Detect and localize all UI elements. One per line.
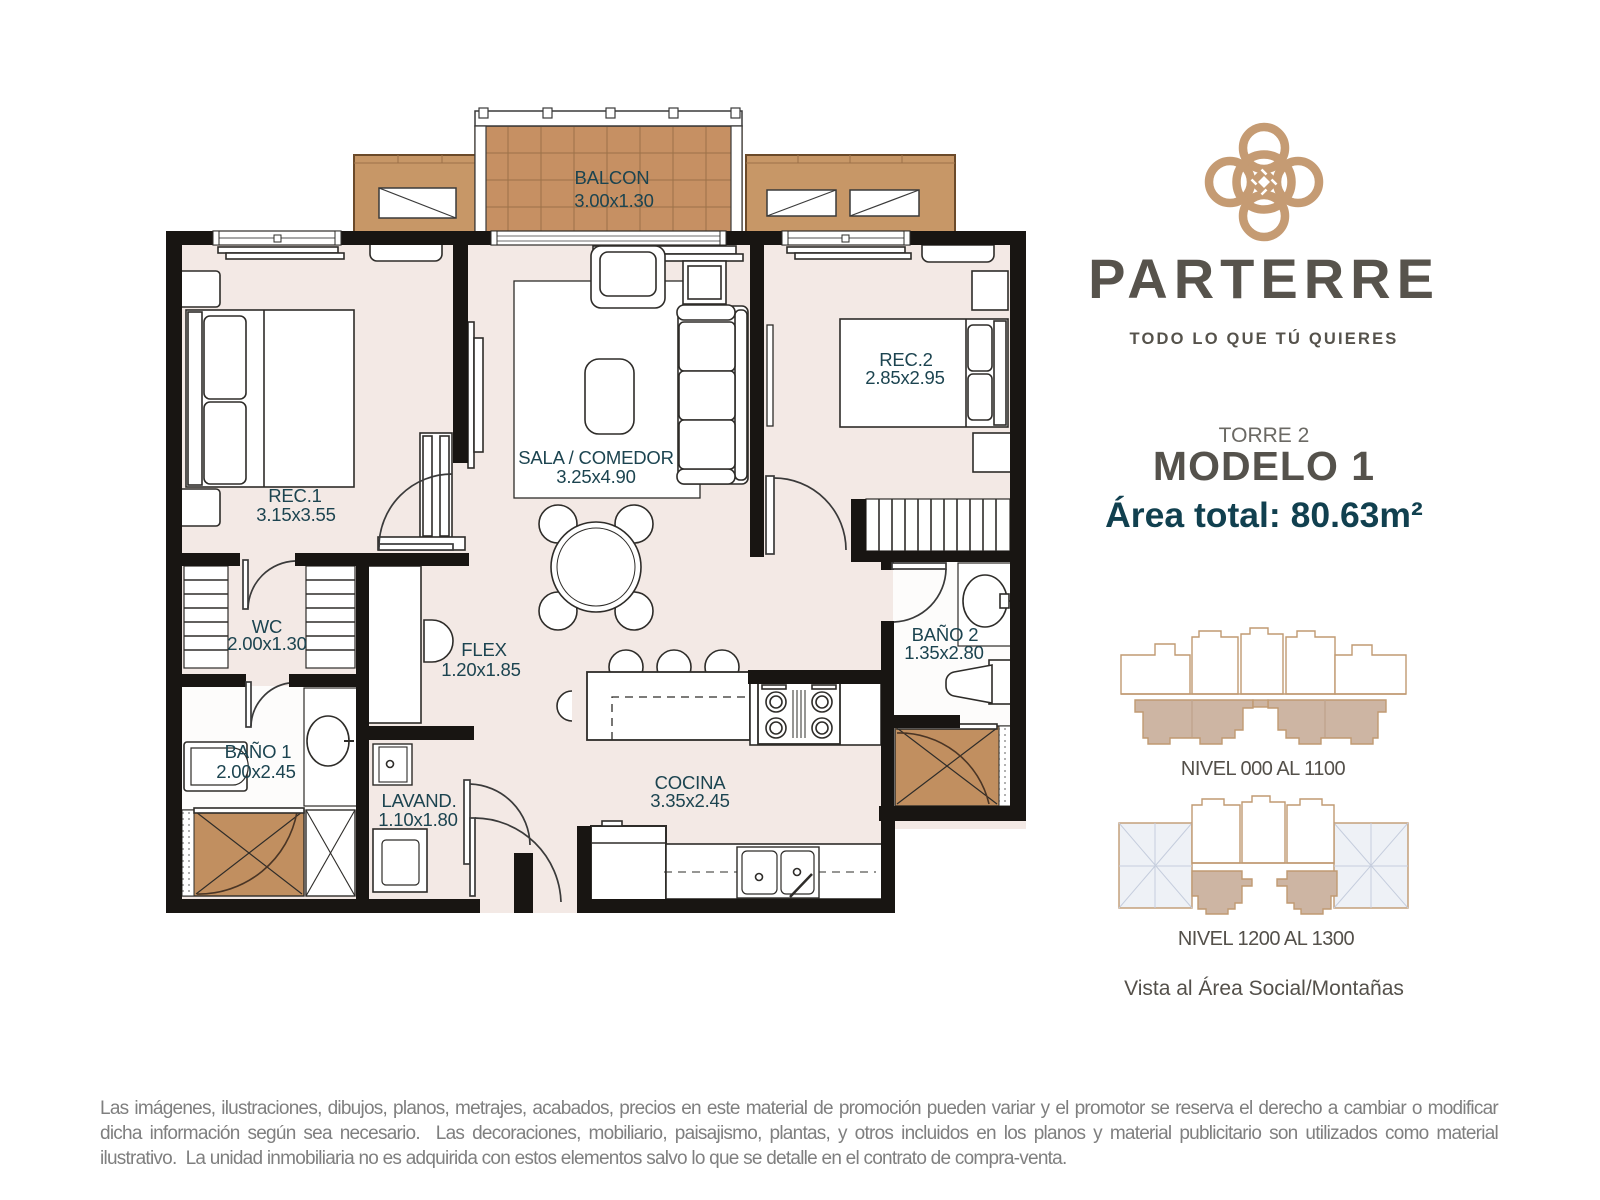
svg-text:1.20x1.85: 1.20x1.85 bbox=[441, 659, 520, 680]
svg-text:3.35x2.45: 3.35x2.45 bbox=[650, 790, 729, 811]
svg-text:Vista al Área Social/Montañas: Vista al Área Social/Montañas bbox=[1124, 977, 1404, 1000]
svg-text:3.25x4.90: 3.25x4.90 bbox=[556, 466, 635, 487]
svg-text:2.00x2.45: 2.00x2.45 bbox=[216, 761, 295, 782]
svg-text:2.85x2.95: 2.85x2.95 bbox=[865, 367, 944, 388]
svg-text:1.10x1.80: 1.10x1.80 bbox=[378, 809, 457, 830]
svg-text:3.15x3.55: 3.15x3.55 bbox=[256, 504, 335, 525]
svg-text:BAÑO 1: BAÑO 1 bbox=[225, 741, 292, 762]
svg-text:TODO LO QUE TÚ QUIERES: TODO LO QUE TÚ QUIERES bbox=[1129, 329, 1398, 348]
svg-text:1.35x2.80: 1.35x2.80 bbox=[904, 642, 983, 663]
svg-text:MODELO 1: MODELO 1 bbox=[1153, 443, 1375, 489]
svg-text:NIVEL 000 AL 1100: NIVEL 000 AL 1100 bbox=[1181, 758, 1346, 780]
svg-text:LAVAND.: LAVAND. bbox=[381, 790, 456, 811]
svg-text:3.00x1.30: 3.00x1.30 bbox=[574, 190, 653, 211]
svg-text:BALCON: BALCON bbox=[575, 167, 650, 188]
svg-text:Área total: 80.63m²: Área total: 80.63m² bbox=[1105, 495, 1423, 535]
svg-text:PARTERRE: PARTERRE bbox=[1088, 247, 1440, 310]
svg-text:SALA / COMEDOR: SALA / COMEDOR bbox=[518, 447, 674, 468]
svg-text:FLEX: FLEX bbox=[461, 639, 506, 660]
svg-text:2.00x1.30: 2.00x1.30 bbox=[227, 633, 306, 654]
svg-text:REC.1: REC.1 bbox=[268, 485, 322, 506]
svg-text:NIVEL 1200 AL 1300: NIVEL 1200 AL 1300 bbox=[1178, 928, 1355, 950]
